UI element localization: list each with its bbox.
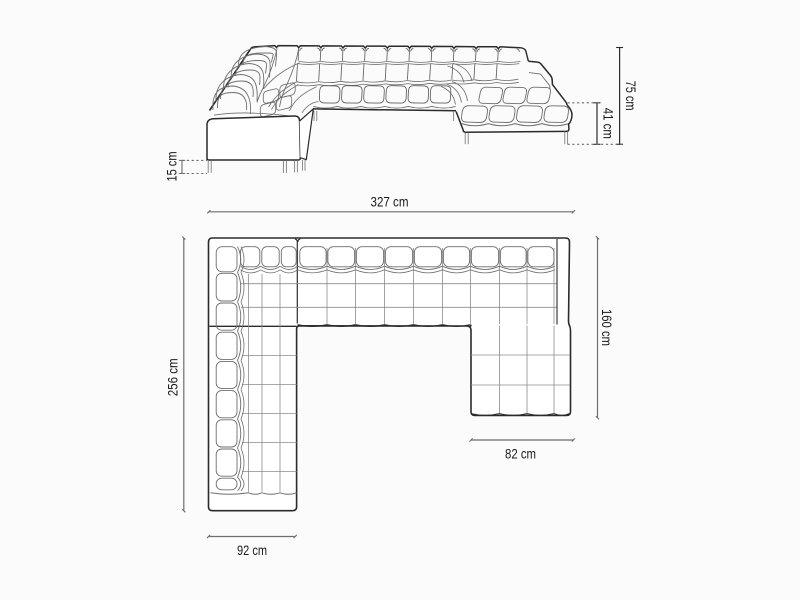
svg-text:160 cm: 160 cm	[599, 309, 615, 346]
svg-text:327 cm: 327 cm	[371, 194, 409, 210]
svg-text:92 cm: 92 cm	[237, 542, 267, 558]
svg-text:15 cm: 15 cm	[164, 152, 180, 182]
svg-text:256 cm: 256 cm	[165, 358, 181, 396]
svg-text:82 cm: 82 cm	[505, 446, 536, 462]
svg-text:41 cm: 41 cm	[600, 108, 616, 139]
svg-text:75 cm: 75 cm	[623, 81, 639, 111]
